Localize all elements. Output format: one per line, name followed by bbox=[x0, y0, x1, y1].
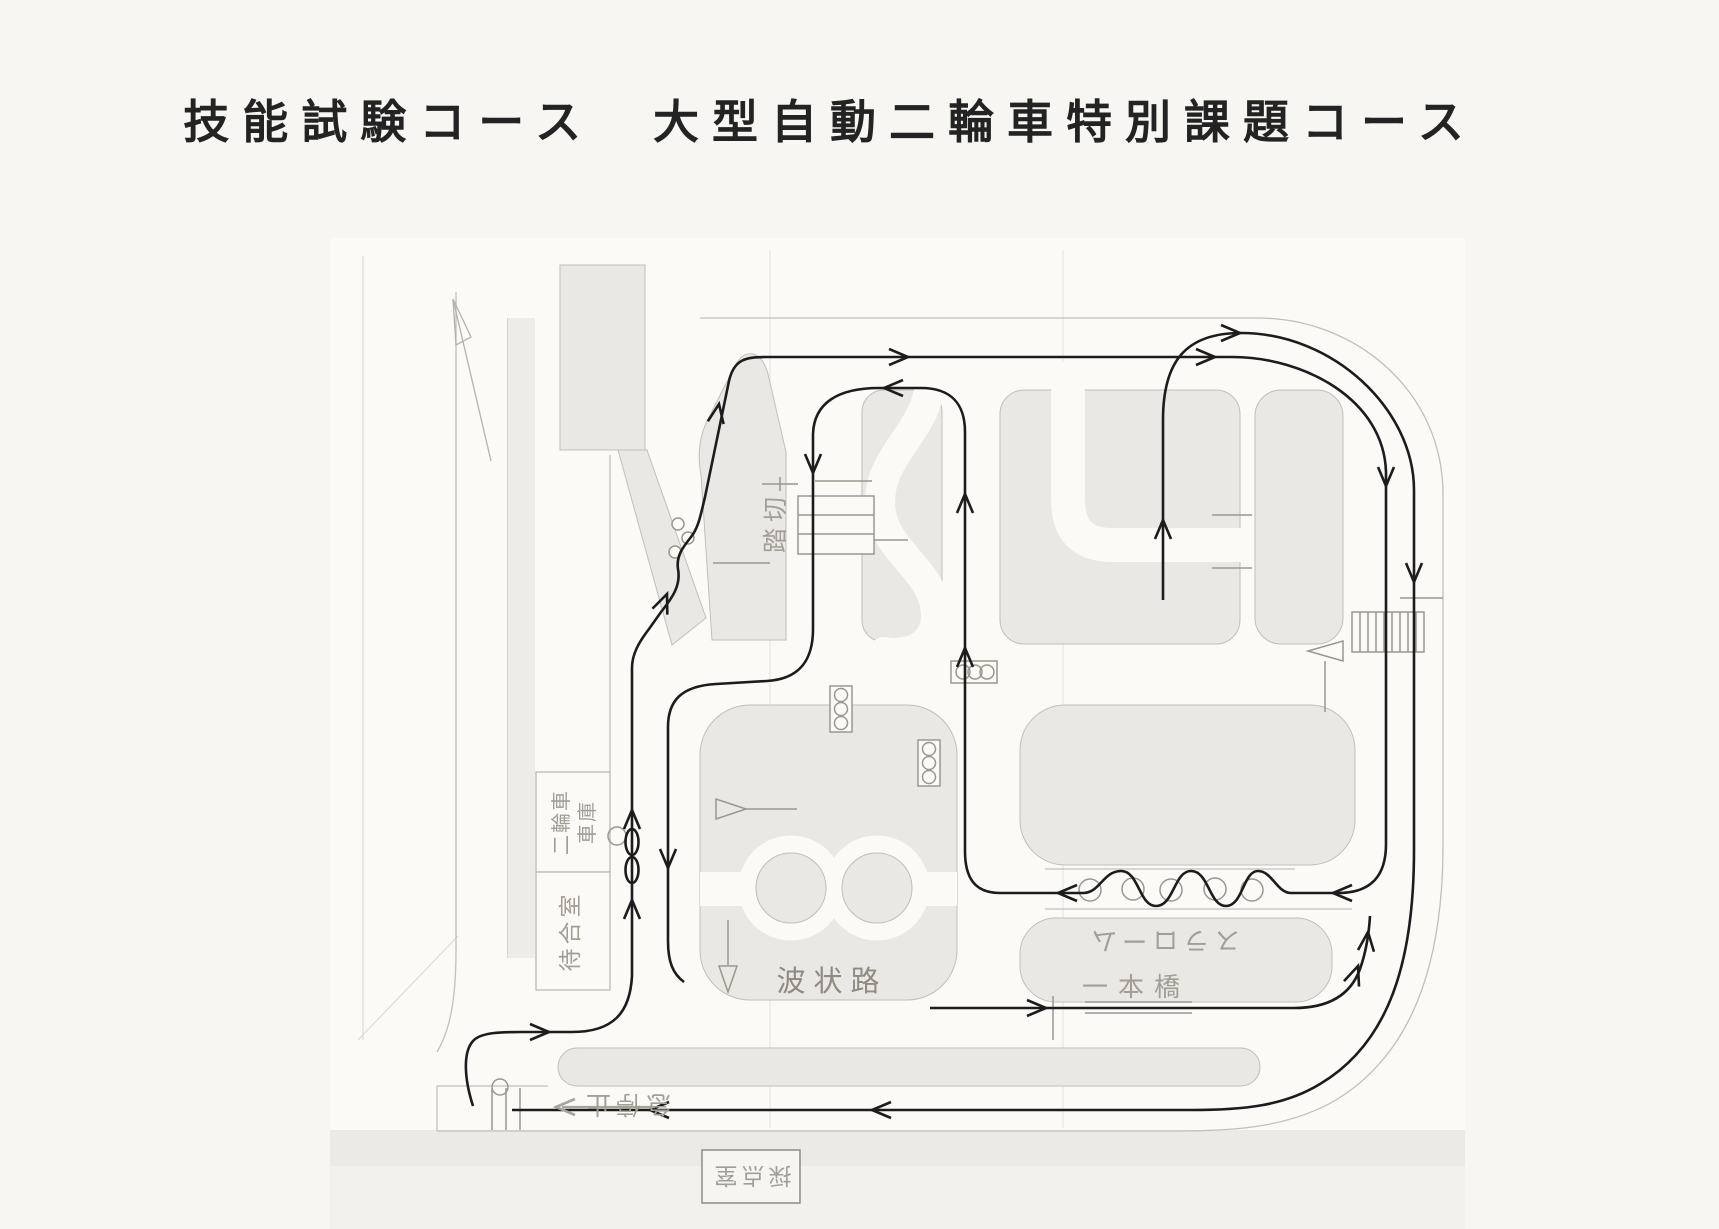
balance-beam-label: 一本橋 bbox=[1082, 973, 1190, 1003]
pylon-icon bbox=[1079, 879, 1101, 901]
garage-label-line2: 車庫 bbox=[575, 800, 599, 844]
crank-block bbox=[1000, 390, 1240, 644]
traffic-light-icon bbox=[918, 740, 940, 786]
garage-box: 二輪車 車庫 bbox=[536, 772, 610, 872]
sudden-stop-label: 急停止 bbox=[581, 1090, 671, 1119]
figure8-right-circle bbox=[842, 853, 912, 923]
pylon-icon bbox=[1160, 879, 1182, 901]
scanned-course-sheet: 技能試験コース 大型自動二輪車特別課題コース bbox=[0, 0, 1719, 1229]
waiting-room-box: 待合室 bbox=[536, 872, 610, 990]
bottom-divider-strip bbox=[558, 1048, 1260, 1086]
slalom-upper-block bbox=[1020, 705, 1355, 865]
scoring-room-box: 採点室 bbox=[702, 1150, 800, 1203]
railroad-crossing-label: 踏切 bbox=[761, 491, 790, 553]
pylon-icon bbox=[1122, 878, 1144, 900]
pylon-icon bbox=[672, 518, 684, 530]
figure8-left-circle bbox=[756, 853, 826, 923]
scoring-room-label: 採点室 bbox=[711, 1162, 792, 1188]
course-map: 技能試験コース 大型自動二輪車特別課題コース bbox=[0, 0, 1719, 1229]
wavy-road-label: 波状路 bbox=[776, 964, 887, 998]
waiting-room-label: 待合室 bbox=[558, 891, 584, 972]
garage-label-line1: 二輪車 bbox=[549, 789, 573, 855]
slalom-label: スラローム bbox=[1086, 926, 1240, 955]
page-title: 技能試験コース 大型自動二輪車特別課題コース bbox=[183, 95, 1476, 149]
pylon-icon bbox=[1204, 878, 1226, 900]
right-top-block bbox=[1255, 390, 1343, 644]
top-left-block bbox=[560, 265, 645, 450]
traffic-light-icon bbox=[830, 686, 852, 732]
